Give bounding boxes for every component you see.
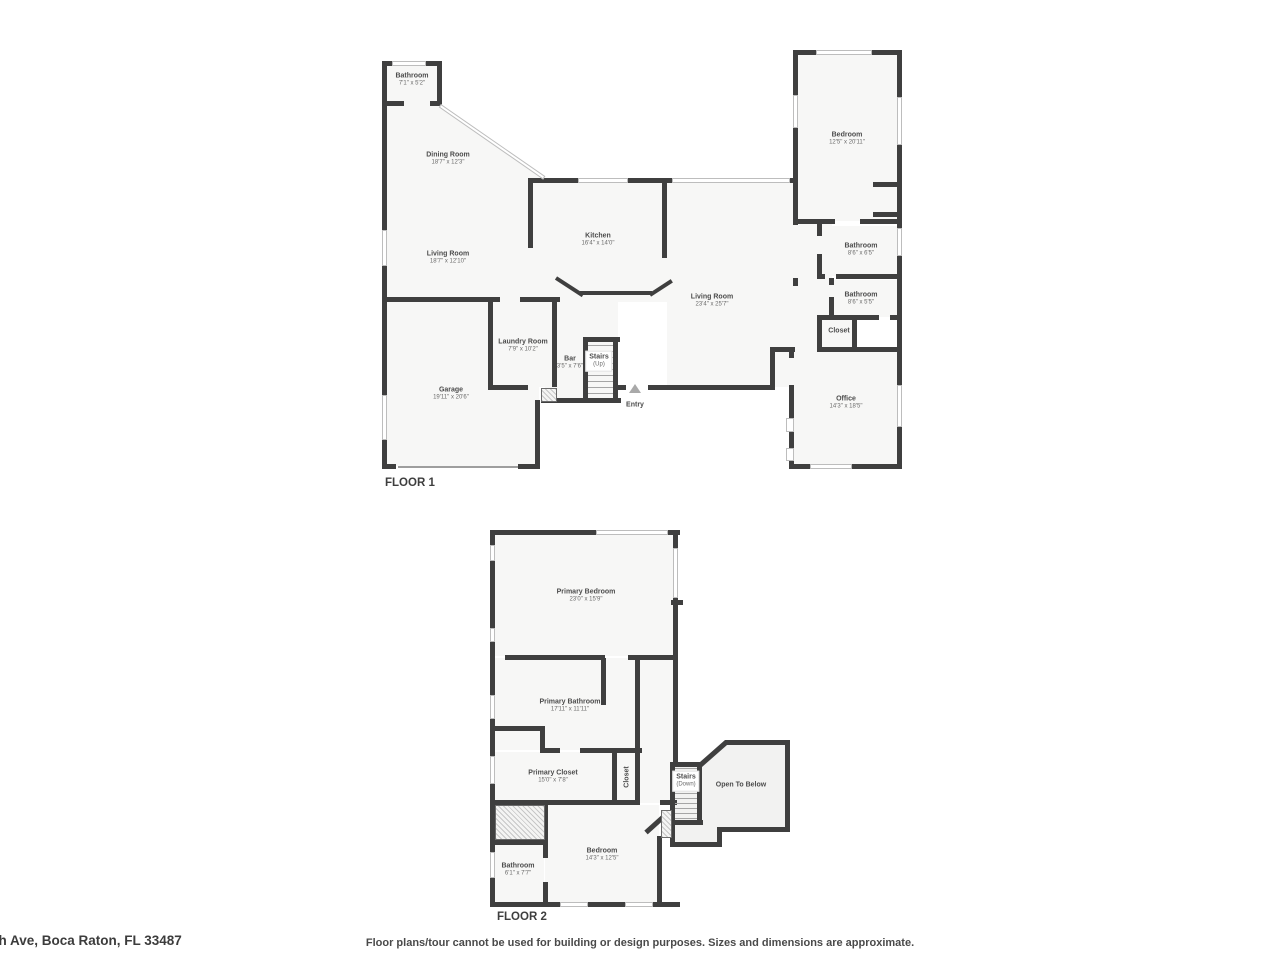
stair-step-line — [675, 793, 697, 794]
window-marker — [786, 418, 794, 432]
room-name-label: Closet — [828, 326, 849, 335]
wall — [829, 278, 834, 285]
disclaimer-text: Floor plans/tour cannot be used for buil… — [366, 937, 914, 949]
window-marker — [897, 97, 902, 145]
stairs-label: Stairs(Up) — [585, 351, 612, 372]
room-dims-label: (Up) — [589, 362, 608, 370]
stair-step-line — [675, 813, 697, 814]
wall — [528, 183, 533, 248]
room-dims-label: 19'11" x 20'6" — [433, 395, 469, 403]
floor2-title: FLOOR 2 — [497, 911, 547, 923]
stair-step-line — [588, 345, 613, 346]
window-marker — [897, 385, 902, 427]
room-dims-label: 7'1" x 5'2" — [395, 81, 428, 89]
room-floor — [640, 658, 674, 758]
wall — [648, 385, 775, 390]
room-name-label: Stairs — [589, 353, 608, 362]
wall — [612, 752, 617, 805]
room-name-label: Bedroom — [586, 847, 619, 856]
wall — [789, 352, 794, 358]
window-marker — [625, 902, 653, 907]
wall — [662, 183, 667, 258]
floor1-title: FLOOR 1 — [385, 477, 435, 489]
room-dims-label: 18'7" x 12'10" — [427, 259, 469, 267]
window-marker — [490, 756, 495, 784]
wall — [543, 882, 548, 905]
window-marker — [578, 178, 628, 183]
window-marker — [490, 852, 495, 878]
stairs-label: Stairs(Down) — [672, 771, 699, 792]
wall — [488, 302, 493, 390]
closet-label: Closet — [622, 766, 631, 787]
wall — [770, 347, 775, 390]
room-dims-label: 16'4" x 14'0" — [582, 241, 615, 249]
room-dims-label: 23'4" x 25'7" — [691, 302, 733, 310]
room-name-label: Entry — [626, 400, 644, 409]
window-marker — [793, 95, 798, 128]
room-dims-label: 8'6" x 6'5" — [844, 251, 877, 259]
wall — [635, 658, 640, 805]
wall — [488, 385, 528, 390]
room-dims-label: (Down) — [676, 782, 695, 790]
window-marker — [560, 902, 588, 907]
property-address: th Ave, Boca Raton, FL 33487 — [0, 933, 182, 948]
room-name-label: Dining Room — [426, 151, 470, 160]
window-marker — [897, 228, 902, 256]
window-marker — [382, 230, 387, 266]
laundry-label: Laundry Room7'9" x 10'2" — [498, 338, 547, 355]
room-dims-label: 15'0" x 7'8" — [528, 778, 577, 786]
room-name-label: Living Room — [691, 293, 733, 302]
bathroom_tl-label: Bathroom7'1" x 5'2" — [395, 72, 428, 89]
wall — [817, 224, 822, 236]
window-marker — [392, 61, 426, 66]
wall — [829, 297, 834, 320]
stair-step-line — [588, 381, 613, 382]
room-dims-label: 14'3" x 12'5" — [586, 856, 619, 864]
wall — [552, 302, 557, 387]
room-name-label: Primary Closet — [528, 769, 577, 778]
bedroom-label: Bedroom12'5" x 20'11" — [829, 131, 865, 148]
wall — [860, 219, 902, 224]
wall — [505, 655, 605, 660]
entry-direction-icon — [629, 384, 641, 393]
hatch-area — [661, 810, 672, 838]
room-name-label: Closet — [622, 766, 631, 787]
wall — [437, 61, 442, 106]
bathroom_r2-label: Bathroom8'6" x 5'5" — [844, 291, 877, 308]
window-marker — [786, 448, 794, 461]
room-name-label: Open To Below — [716, 780, 766, 789]
room-name-label: Bathroom — [501, 862, 534, 871]
stair-step-line — [675, 768, 697, 769]
wall — [671, 600, 683, 605]
floorplan-canvas: Bathroom7'1" x 5'2"Dining Room18'7" x 12… — [0, 0, 1280, 960]
wall — [657, 836, 662, 907]
room-dims-label: 14'3" x 18'5" — [830, 404, 863, 412]
window-marker — [490, 628, 495, 642]
wall — [613, 337, 618, 403]
wall — [793, 278, 798, 286]
stair-step-line — [588, 393, 613, 394]
wall — [535, 400, 540, 469]
wall — [817, 315, 879, 320]
bedroom-label: Bedroom14'3" x 12'5" — [586, 847, 619, 864]
wall — [618, 385, 626, 390]
window-marker — [490, 695, 495, 719]
room-name-label: Garage — [433, 386, 469, 395]
window-marker — [810, 464, 852, 469]
wall — [543, 845, 548, 858]
wall — [601, 658, 606, 705]
office-label: Office14'3" x 18'5" — [830, 395, 863, 412]
room-name-label: Stairs — [676, 773, 695, 782]
wall — [580, 748, 642, 753]
hatch-area — [541, 388, 557, 402]
room-floor — [384, 105, 545, 302]
wall — [852, 320, 857, 352]
living_left-label: Living Room18'7" x 12'10" — [427, 250, 469, 267]
room-name-label: Primary Bathroom — [539, 698, 600, 707]
stair-step-line — [675, 798, 697, 799]
living_right-label: Living Room23'4" x 25'7" — [691, 293, 733, 310]
kitchen-label: Kitchen16'4" x 14'0" — [582, 232, 615, 249]
room-name-label: Bar — [557, 355, 583, 364]
wall — [836, 274, 900, 279]
room-dims-label: 12'5" x 20'11" — [829, 140, 865, 148]
closet-label: Closet — [828, 326, 849, 335]
window-marker — [490, 545, 495, 561]
stair-step-line — [675, 818, 697, 819]
room-dims-label: 23'0" x 15'9" — [557, 597, 616, 605]
window-marker — [672, 178, 790, 183]
window-marker — [596, 530, 668, 535]
bathroom_r1-label: Bathroom8'6" x 6'5" — [844, 242, 877, 259]
primary_bathroom-label: Primary Bathroom17'11" x 11'11" — [539, 698, 600, 715]
room-name-label: Primary Bedroom — [557, 588, 616, 597]
dining-label: Dining Room18'7" x 12'3" — [426, 151, 470, 168]
wall — [673, 658, 678, 766]
primary_bedroom-label: Primary Bedroom23'0" x 15'9" — [557, 588, 616, 605]
wall — [540, 726, 545, 753]
room-name-label: Bedroom — [829, 131, 865, 140]
hatch-area — [495, 805, 545, 840]
bar-label: Bar3'5" x 7'6" — [557, 355, 583, 372]
room-dims-label: 3'5" x 7'6" — [557, 364, 583, 372]
wall — [490, 726, 545, 731]
wall — [817, 347, 902, 352]
room-name-label: Laundry Room — [498, 338, 547, 347]
wall — [580, 291, 652, 295]
stair-step-line — [588, 375, 613, 376]
wall — [490, 840, 548, 845]
room-name-label: Bathroom — [395, 72, 428, 81]
room-name-label: Bathroom — [844, 242, 877, 251]
wall — [382, 302, 387, 469]
room-name-label: Office — [830, 395, 863, 404]
room-dims-label: 8'6" x 5'5" — [844, 300, 877, 308]
room-dims-label: 6'1" x 7'7" — [501, 871, 534, 879]
room-dims-label: 7'9" x 10'2" — [498, 347, 547, 355]
window-marker — [382, 395, 387, 440]
window-marker — [673, 548, 678, 598]
room-name-label: Living Room — [427, 250, 469, 259]
stair-step-line — [675, 803, 697, 804]
stair-step-line — [675, 808, 697, 809]
stair-step-line — [588, 387, 613, 388]
room-dims-label: 18'7" x 12'3" — [426, 160, 470, 168]
wall — [817, 320, 822, 352]
room-name-label: Kitchen — [582, 232, 615, 241]
wall — [793, 50, 798, 225]
window-marker — [816, 50, 872, 55]
bathroom-label: Bathroom6'1" x 7'7" — [501, 862, 534, 879]
primary_closet-label: Primary Closet15'0" x 7'8" — [528, 769, 577, 786]
room-dims-label: 17'11" x 11'11" — [539, 707, 600, 715]
garage-door-line — [398, 466, 518, 468]
open_below-label: Open To Below — [716, 780, 766, 789]
wall — [817, 254, 822, 278]
entry-label: Entry — [626, 400, 644, 409]
wall — [793, 219, 835, 224]
room-name-label: Bathroom — [844, 291, 877, 300]
wall — [382, 297, 500, 302]
garage-label: Garage19'11" x 20'6" — [433, 386, 469, 403]
